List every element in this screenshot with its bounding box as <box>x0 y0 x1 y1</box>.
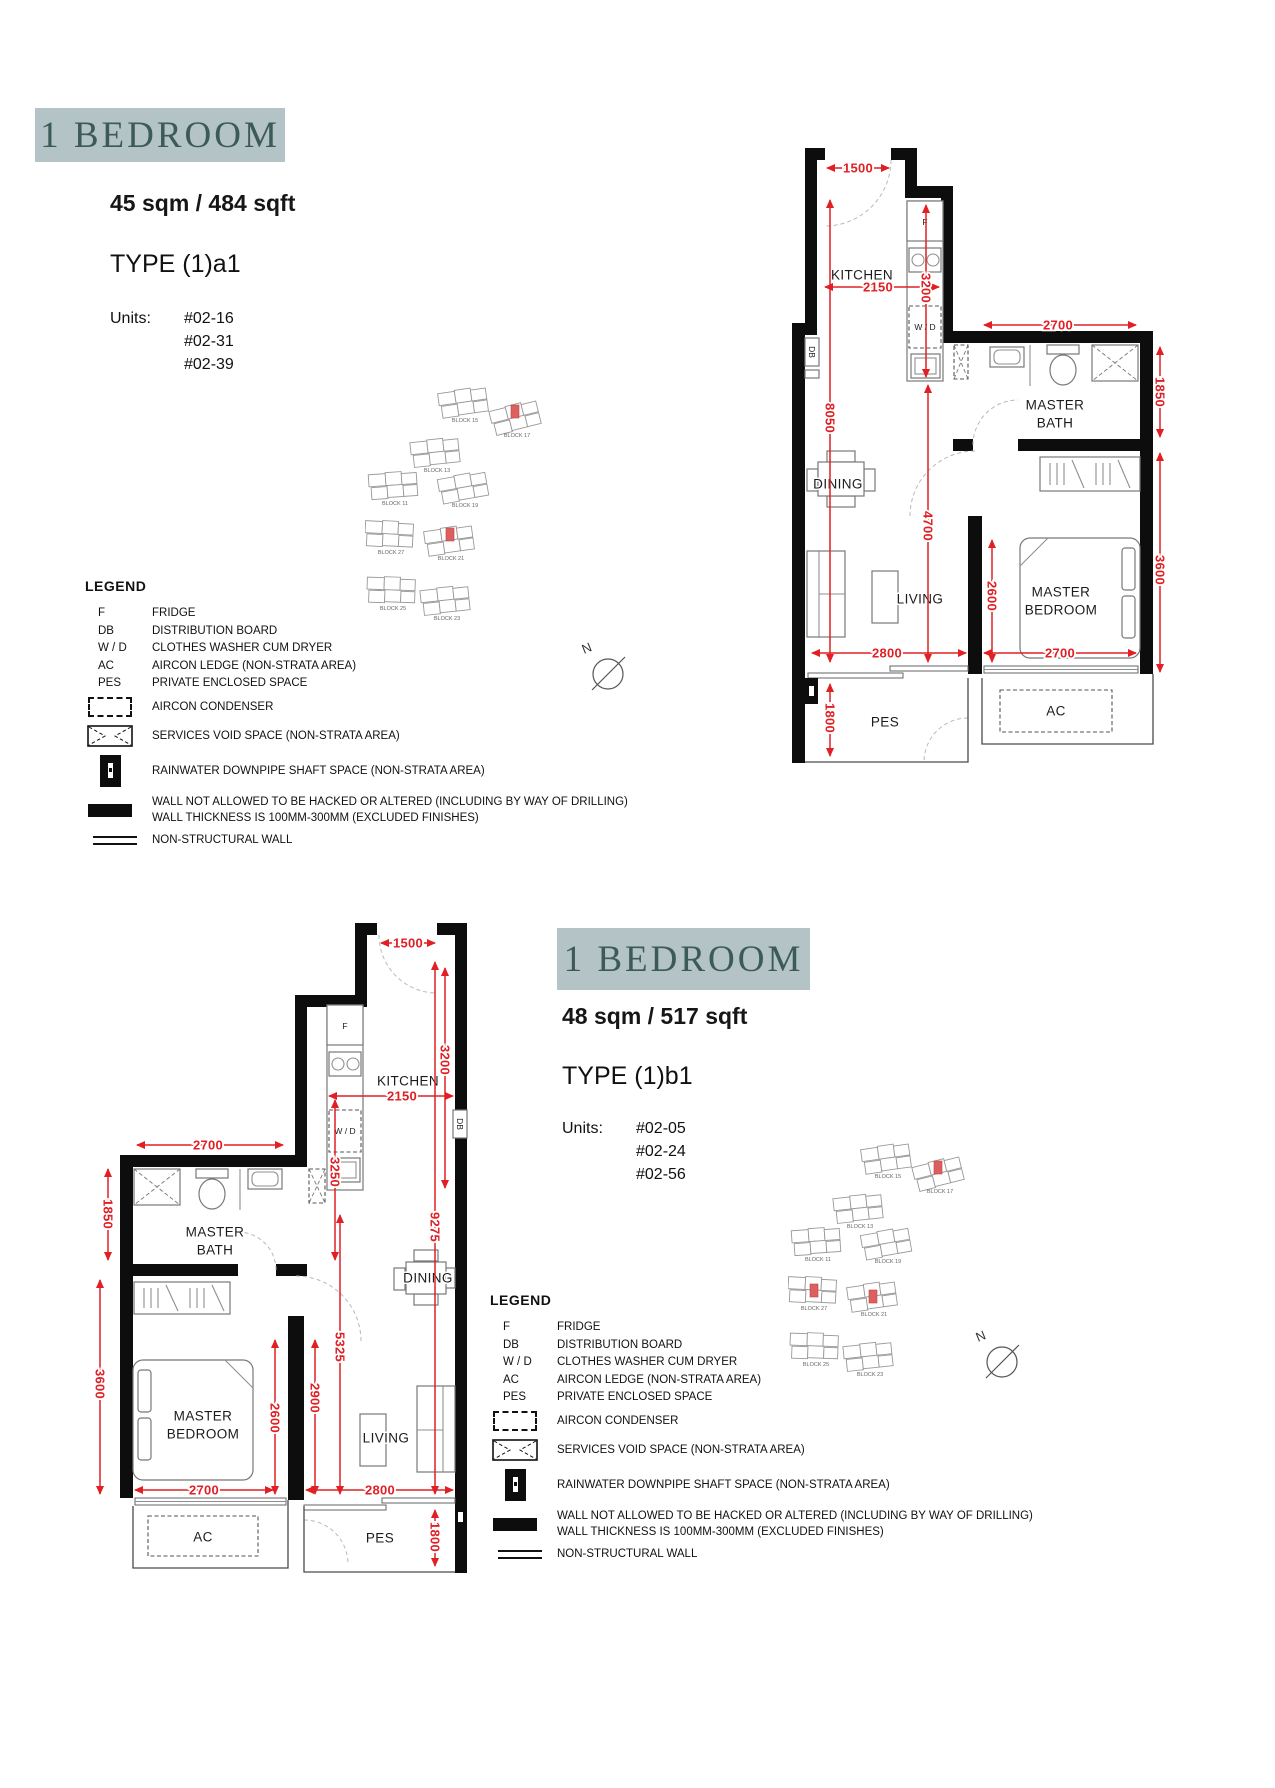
dim-bath-depth: 1850 <box>101 1199 116 1229</box>
legend-key: AC <box>490 1374 557 1386</box>
dim-bedroom-width: 2700 <box>189 1483 219 1498</box>
unit-type-header-b1: 1 BEDROOM <box>557 928 810 990</box>
unit-list-a1: Units: #02-16 #02-31 #02-39 <box>110 310 234 379</box>
unit-area-b1: 48 sqm / 517 sqft <box>562 1003 747 1030</box>
floor-plan-brochure-page: { "colors": { "badge_bg": "#b4c3c5", "ba… <box>0 0 1275 1788</box>
legend-key: F <box>490 1321 557 1333</box>
legend-desc: NON-STRUCTURAL WALL <box>152 834 292 846</box>
legend-desc: FRIDGE <box>557 1321 600 1333</box>
dim-living-span: 4700 <box>921 511 936 541</box>
pes-and-ac-boundaries <box>805 674 1153 762</box>
no-hack-wall-icon <box>493 1518 537 1531</box>
dim-pes-depth: 1800 <box>428 1522 443 1552</box>
tag-washer-dryer: W / D <box>334 1126 355 1136</box>
room-label-master-bath: BATH <box>197 1243 234 1258</box>
room-label-living: LIVING <box>897 592 944 607</box>
dim-total-depth: 9275 <box>428 1212 443 1242</box>
non-structural-wall-icon <box>498 1550 542 1559</box>
room-label-master-bath: BATH <box>1037 416 1074 431</box>
legend-desc: AIRCON CONDENSER <box>557 1415 678 1427</box>
highlighted-unit <box>511 405 519 418</box>
legend-desc: WALL THICKNESS IS 100MM-300MM (EXCLUDED … <box>557 1525 1033 1541</box>
sofa <box>360 1386 455 1472</box>
room-label-kitchen: KITCHEN <box>377 1074 439 1089</box>
dim-bath-width: 2700 <box>1043 318 1073 333</box>
dim-entry-width: 1500 <box>393 936 423 951</box>
dim-bedroom-depth: 3600 <box>1153 555 1168 585</box>
block-label: BLOCK 11 <box>805 1257 831 1263</box>
dim-living-width: 2800 <box>365 1483 395 1498</box>
dim-entry-width: 1500 <box>843 161 873 176</box>
dim-total-depth: 8050 <box>823 403 838 433</box>
legend-key: PES <box>85 677 152 689</box>
room-label-master-bedroom: BEDROOM <box>1025 603 1098 618</box>
dim-living-width: 2800 <box>872 646 902 661</box>
room-label-dining: DINING <box>403 1271 453 1286</box>
block-label: BLOCK 11 <box>382 501 408 507</box>
legend-desc: PRIVATE ENCLOSED SPACE <box>152 677 307 689</box>
highlighted-unit <box>934 1161 942 1174</box>
room-label-pes: PES <box>871 715 899 730</box>
block-label: BLOCK 19 <box>875 1259 901 1265</box>
unit-type-name-b1: TYPE (1)b1 <box>562 1062 693 1091</box>
unit-number: #02-24 <box>636 1143 686 1161</box>
unit-number: #02-39 <box>184 356 234 374</box>
legend-desc: PRIVATE ENCLOSED SPACE <box>557 1391 712 1403</box>
highlighted-unit <box>446 528 454 541</box>
non-structural-wall-icon <box>93 836 137 845</box>
no-hack-wall-icon <box>88 804 132 817</box>
legend-desc: AIRCON LEDGE (NON-STRATA AREA) <box>557 1374 761 1386</box>
block-label: BLOCK 17 <box>927 1189 953 1195</box>
bath-fixtures <box>134 1169 325 1210</box>
dim-bedroom-width: 2700 <box>1045 646 1075 661</box>
pes-and-ac-boundaries <box>133 1500 467 1572</box>
legend-desc: SERVICES VOID SPACE (NON-STRATA AREA) <box>152 730 400 742</box>
legend-desc: CLOTHES WASHER CUM DRYER <box>152 642 332 654</box>
room-label-master-bath: MASTER <box>186 1225 245 1240</box>
dim-bath-depth: 1850 <box>1153 377 1168 407</box>
legend-title: LEGEND <box>85 578 660 594</box>
legend-key: W / D <box>85 642 152 654</box>
tag-fridge: F <box>342 1021 347 1031</box>
dim-counter-depth: 3250 <box>328 1157 343 1187</box>
legend-title: LEGEND <box>490 1292 1065 1308</box>
floor-plan-type-a1: KITCHEN DINING LIVING MASTER BATH MASTER… <box>790 118 1175 778</box>
units-label: Units: <box>110 310 184 379</box>
legend-key: F <box>85 607 152 619</box>
tag-db: DB <box>455 1118 465 1130</box>
room-label-dining: DINING <box>813 477 863 492</box>
legend-key: DB <box>490 1339 557 1351</box>
unit-area-a1: 45 sqm / 484 sqft <box>110 190 295 217</box>
dim-bath-width: 2700 <box>193 1138 223 1153</box>
sofa <box>807 551 898 637</box>
legend-key: PES <box>490 1391 557 1403</box>
aircon-condenser-icon <box>88 697 132 717</box>
dim-bedroom-clear: 2600 <box>985 581 1000 611</box>
legend-desc: NON-STRUCTURAL WALL <box>557 1548 697 1560</box>
dim-kitchen-width: 2150 <box>387 1089 417 1104</box>
bath-fixtures <box>954 345 1138 386</box>
legend-desc: WALL NOT ALLOWED TO BE HACKED OR ALTERED… <box>557 1509 1033 1525</box>
room-label-living: LIVING <box>363 1431 410 1446</box>
dim-kitchen-depth: 3200 <box>438 1045 453 1075</box>
dim-hall-span: 5325 <box>333 1332 348 1362</box>
room-label-ac: AC <box>1046 704 1066 719</box>
block-label: BLOCK 27 <box>378 550 404 556</box>
room-label-master-bedroom: MASTER <box>1032 585 1091 600</box>
dim-bedroom-clear: 2600 <box>268 1403 283 1433</box>
legend-key: DB <box>85 625 152 637</box>
services-void-icon <box>492 1439 538 1461</box>
unit-type-name-a1: TYPE (1)a1 <box>110 250 241 279</box>
legend-key: W / D <box>490 1356 557 1368</box>
rainwater-downpipe-icon <box>100 755 121 787</box>
unit-number: #02-16 <box>184 310 234 328</box>
dim-bedroom-depth: 3600 <box>93 1369 108 1399</box>
units-label: Units: <box>562 1120 636 1189</box>
legend-desc: RAINWATER DOWNPIPE SHAFT SPACE (NON-STRA… <box>557 1479 890 1491</box>
legend-desc: CLOTHES WASHER CUM DRYER <box>557 1356 737 1368</box>
legend-desc: WALL NOT ALLOWED TO BE HACKED OR ALTERED… <box>152 795 628 811</box>
dim-kitchen-width: 2150 <box>863 280 893 295</box>
floor-plan-type-b1: KITCHEN DINING LIVING MASTER BATH MASTER… <box>88 920 473 1590</box>
dim-pes-depth: 1800 <box>823 703 838 733</box>
room-label-master-bedroom: BEDROOM <box>167 1427 240 1442</box>
tag-db: DB <box>807 346 817 358</box>
legend-desc: DISTRIBUTION BOARD <box>152 625 277 637</box>
unit-number: #02-05 <box>636 1120 686 1138</box>
legend-desc: DISTRIBUTION BOARD <box>557 1339 682 1351</box>
tag-washer-dryer: W / D <box>914 322 935 332</box>
room-label-master-bedroom: MASTER <box>174 1409 233 1424</box>
legend-desc: SERVICES VOID SPACE (NON-STRATA AREA) <box>557 1444 805 1456</box>
unit-list-b1: Units: #02-05 #02-24 #02-56 <box>562 1120 686 1189</box>
block-label: BLOCK 17 <box>504 433 530 439</box>
room-label-master-bath: MASTER <box>1026 398 1085 413</box>
legend: LEGEND FFRIDGE DBDISTRIBUTION BOARD W / … <box>490 1292 1065 1566</box>
wardrobe <box>1040 457 1140 491</box>
block-label: BLOCK 13 <box>847 1224 873 1230</box>
room-label-ac: AC <box>193 1530 213 1545</box>
block-label: BLOCK 15 <box>452 418 478 424</box>
dim-living-clear: 2900 <box>308 1383 323 1413</box>
db-board <box>805 338 819 378</box>
block-label: BLOCK 13 <box>424 468 450 474</box>
block-label: BLOCK 21 <box>438 556 464 562</box>
services-void-icon <box>87 725 133 747</box>
tag-fridge: F <box>922 217 927 227</box>
block-label: BLOCK 19 <box>452 503 478 509</box>
aircon-condenser-icon <box>493 1411 537 1431</box>
legend-desc: AIRCON CONDENSER <box>152 701 273 713</box>
unit-type-header-a1: 1 BEDROOM <box>35 108 285 162</box>
block-label: BLOCK 15 <box>875 1174 901 1180</box>
rainwater-downpipe-icon <box>505 1469 526 1501</box>
legend-desc: FRIDGE <box>152 607 195 619</box>
legend-desc: RAINWATER DOWNPIPE SHAFT SPACE (NON-STRA… <box>152 765 485 777</box>
unit-number: #02-56 <box>636 1166 686 1184</box>
legend: LEGEND FFRIDGE DBDISTRIBUTION BOARD W / … <box>85 578 660 852</box>
legend-key: AC <box>85 660 152 672</box>
unit-number: #02-31 <box>184 333 234 351</box>
legend-desc: AIRCON LEDGE (NON-STRATA AREA) <box>152 660 356 672</box>
room-label-pes: PES <box>366 1531 394 1546</box>
dim-kitchen-depth: 3200 <box>919 273 934 303</box>
legend-desc: WALL THICKNESS IS 100MM-300MM (EXCLUDED … <box>152 811 628 827</box>
wardrobe <box>134 1282 230 1314</box>
